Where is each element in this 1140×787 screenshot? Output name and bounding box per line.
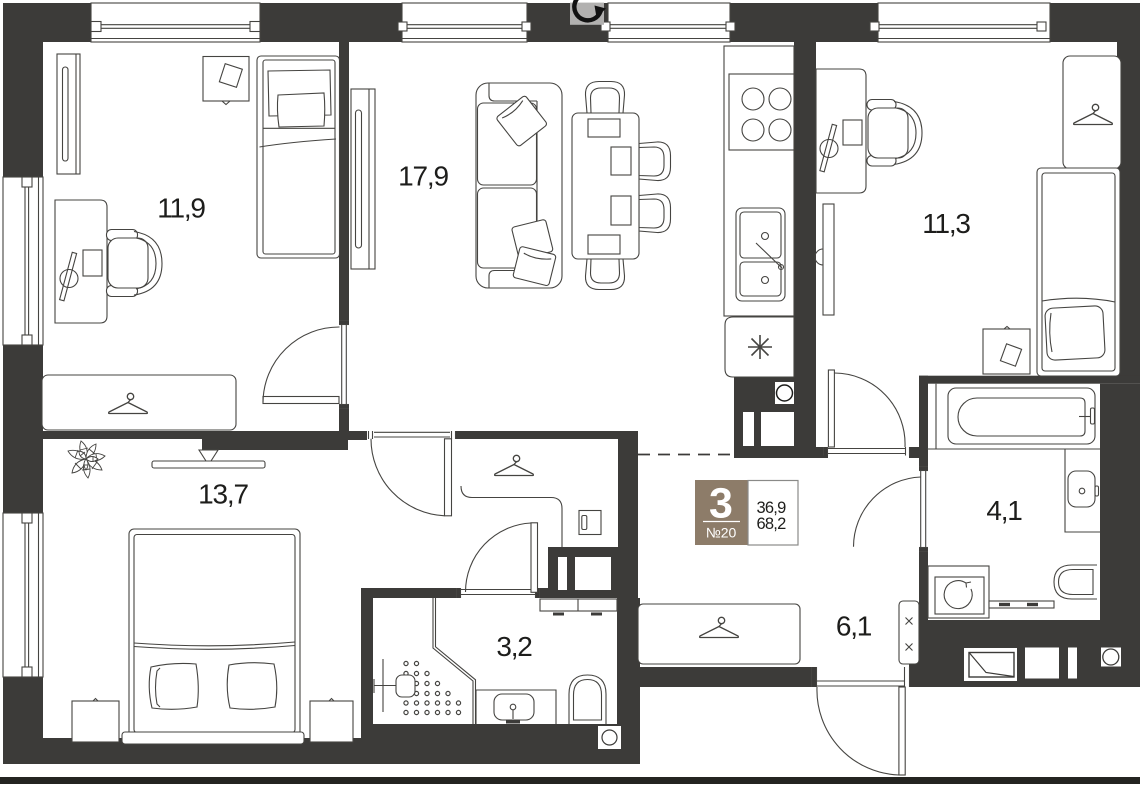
svg-text:№20: №20: [706, 525, 737, 541]
svg-text:17,9: 17,9: [398, 161, 448, 192]
svg-text:13,7: 13,7: [198, 479, 248, 510]
svg-text:11,9: 11,9: [157, 193, 205, 224]
svg-text:11,3: 11,3: [922, 208, 970, 239]
svg-text:3,2: 3,2: [496, 631, 532, 662]
svg-text:4,1: 4,1: [986, 495, 1022, 526]
svg-text:3: 3: [709, 480, 733, 528]
svg-text:68,2: 68,2: [757, 515, 787, 533]
svg-text:6,1: 6,1: [836, 611, 872, 642]
